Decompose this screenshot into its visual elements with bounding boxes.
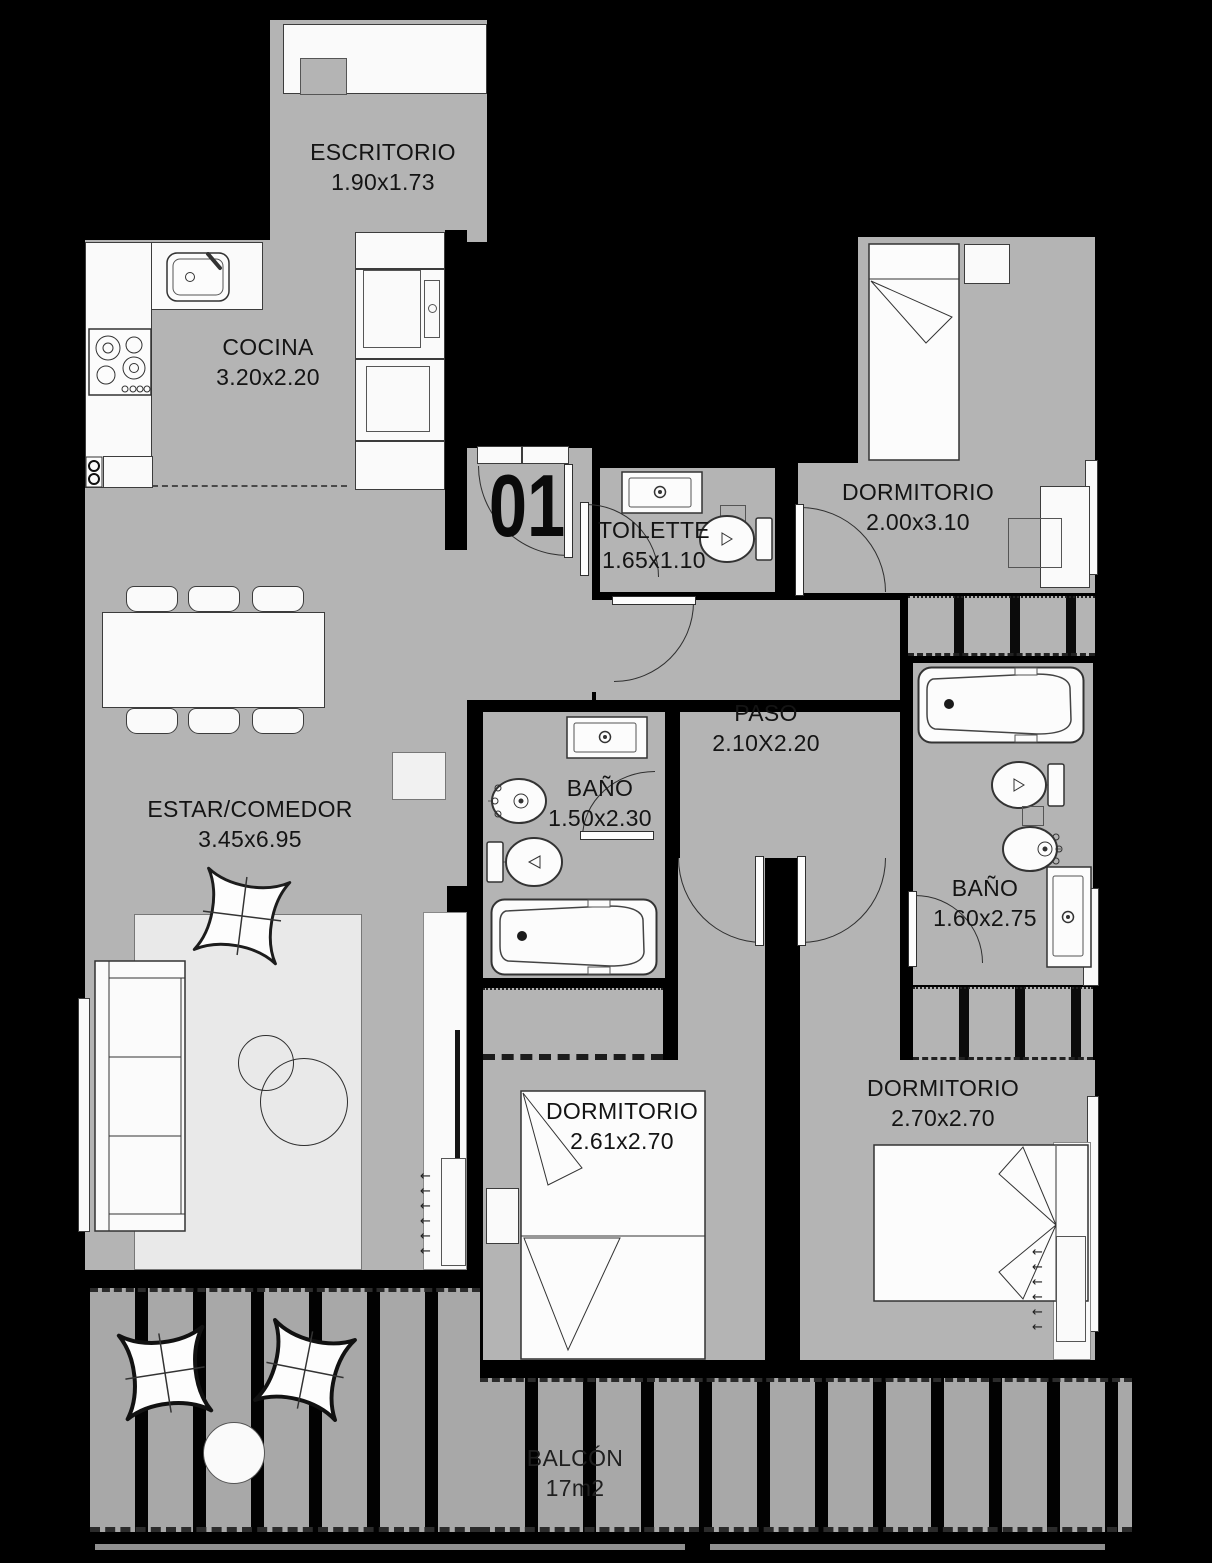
- vent-unit: [441, 1158, 466, 1266]
- room-dims: 1.65x1.10: [598, 545, 710, 575]
- room-name: DORMITORIO: [867, 1073, 1019, 1103]
- room-dims: 2.70x2.70: [867, 1103, 1019, 1133]
- sofa-icon: [94, 960, 186, 1232]
- outdoor-armchair-icon: [105, 1313, 226, 1434]
- room-name: BAÑO: [933, 873, 1037, 903]
- room-name: TOILETTE: [598, 515, 710, 545]
- bathtub-icon: [917, 666, 1085, 744]
- airflow-arrow-icon: ←: [1032, 1321, 1043, 1334]
- room-label-dormitorio-3: DORMITORIO 2.70x2.70: [867, 1073, 1019, 1133]
- room-label-balcon: BALCÓN 17m2: [527, 1443, 623, 1503]
- room-dims: 3.45x6.95: [147, 824, 352, 854]
- armchair-icon: [179, 853, 304, 978]
- room-label-cocina: COCINA 3.20x2.20: [216, 332, 320, 392]
- oven-icon: [366, 366, 430, 432]
- door-leaf: [564, 464, 573, 558]
- desk-chair: [1008, 518, 1062, 568]
- wardrobe-dorm3: [913, 987, 1093, 1060]
- dining-chair: [252, 586, 304, 612]
- airflow-arrow-icon: ←: [420, 1245, 431, 1258]
- airflow-arrow-icon: ←: [1032, 1261, 1043, 1274]
- room-dims: 2.00x3.10: [842, 507, 994, 537]
- dining-chair: [126, 586, 178, 612]
- tv: [455, 1030, 460, 1160]
- vanity-sink-icon: [566, 714, 648, 760]
- nightstand: [964, 244, 1010, 284]
- wardrobe-dorm1: [908, 596, 1095, 656]
- room-label-bano-2: BAÑO 1.60x2.75: [933, 873, 1037, 933]
- airflow-arrows: ← ← ← ← ← ←: [420, 1170, 431, 1258]
- toilet-icon: [990, 758, 1066, 810]
- airflow-arrow-icon: ←: [420, 1185, 431, 1198]
- room-name: COCINA: [216, 332, 320, 362]
- door-leaf: [580, 502, 589, 576]
- room-name: BAÑO: [548, 773, 652, 803]
- room-name: BALCÓN: [527, 1443, 623, 1473]
- room-dims: 1.50x2.30: [548, 803, 652, 833]
- shelf: [392, 752, 446, 800]
- room-name: DORMITORIO: [842, 477, 994, 507]
- room-name: ESCRITORIO: [310, 137, 456, 167]
- tower-divider: [355, 440, 445, 442]
- toilet-icon: [484, 834, 564, 888]
- room-label-toilette: TOILETTE 1.65x1.10: [598, 515, 710, 575]
- dining-table: [102, 612, 325, 708]
- microwave-knob: [428, 304, 437, 313]
- airflow-arrow-icon: ←: [1032, 1276, 1043, 1289]
- airflow-arrow-icon: ←: [420, 1170, 431, 1183]
- airflow-arrow-icon: ←: [1032, 1291, 1043, 1304]
- bidet-icon: [486, 776, 548, 826]
- room-dims: 1.60x2.75: [933, 903, 1037, 933]
- room-name: DORMITORIO: [546, 1096, 698, 1126]
- floor-plan: ← ← ← ← ← ←: [0, 0, 1212, 1563]
- room-dims: 17m2: [527, 1473, 623, 1503]
- window: [78, 998, 90, 1232]
- wall: [445, 230, 467, 550]
- room-label-dormitorio-1: DORMITORIO 2.00x3.10: [842, 477, 994, 537]
- airflow-arrow-icon: ←: [1032, 1306, 1043, 1319]
- dishwasher: [103, 456, 153, 488]
- room-label-bano-1: BAÑO 1.50x2.30: [548, 773, 652, 833]
- room-name: ESTAR/COMEDOR: [147, 794, 352, 824]
- nightstand: [486, 1188, 519, 1244]
- balcony-edge-line: [95, 1544, 685, 1550]
- room-label-escritorio: ESCRITORIO 1.90x1.73: [310, 137, 456, 197]
- bathtub-icon: [490, 898, 658, 976]
- door-leaf: [755, 856, 764, 946]
- wall: [447, 886, 467, 912]
- single-bed-icon: [868, 243, 960, 461]
- kitchen-boundary-line: [152, 485, 347, 487]
- door-leaf: [612, 596, 696, 605]
- room-name: PASO: [712, 698, 820, 728]
- wardrobe-dorm2: [483, 988, 663, 1060]
- kitchen-appliance-icon: [85, 456, 103, 488]
- kitchen-sink-icon: [166, 252, 230, 302]
- microwave-icon: [363, 270, 421, 348]
- dining-chair: [188, 708, 240, 734]
- dining-chair: [252, 708, 304, 734]
- room-dims: 3.20x2.20: [216, 362, 320, 392]
- cistern-box: [1022, 806, 1044, 826]
- airflow-arrows: ← ← ← ← ← ←: [1032, 1246, 1043, 1334]
- tower-divider: [355, 358, 445, 360]
- door-leaf: [908, 891, 917, 967]
- vanity-sink-icon: [621, 469, 703, 515]
- door-leaf: [795, 504, 804, 596]
- door-leaf: [797, 856, 806, 946]
- vent-unit: [1056, 1236, 1086, 1342]
- room-label-paso: PASO 2.10X2.20: [712, 698, 820, 758]
- dining-chair: [188, 586, 240, 612]
- coffee-table: [260, 1058, 348, 1146]
- airflow-arrow-icon: ←: [420, 1215, 431, 1228]
- balcony-edge-line: [710, 1544, 1105, 1550]
- airflow-arrow-icon: ←: [420, 1230, 431, 1243]
- dining-chair: [126, 708, 178, 734]
- airflow-arrow-icon: ←: [420, 1200, 431, 1213]
- room-dims: 2.10X2.20: [712, 728, 820, 758]
- desk-chair: [300, 58, 347, 95]
- unit-number: 01: [489, 455, 565, 557]
- room-label-estar-comedor: ESTAR/COMEDOR 3.45x6.95: [147, 794, 352, 854]
- stove-icon: [88, 328, 152, 396]
- vanity-sink-icon: [1046, 866, 1092, 968]
- room-label-dormitorio-2: DORMITORIO 2.61x2.70: [546, 1096, 698, 1156]
- room-dims: 2.61x2.70: [546, 1126, 698, 1156]
- airflow-arrow-icon: ←: [1032, 1246, 1043, 1259]
- room-dims: 1.90x1.73: [310, 167, 456, 197]
- outdoor-table: [203, 1422, 265, 1484]
